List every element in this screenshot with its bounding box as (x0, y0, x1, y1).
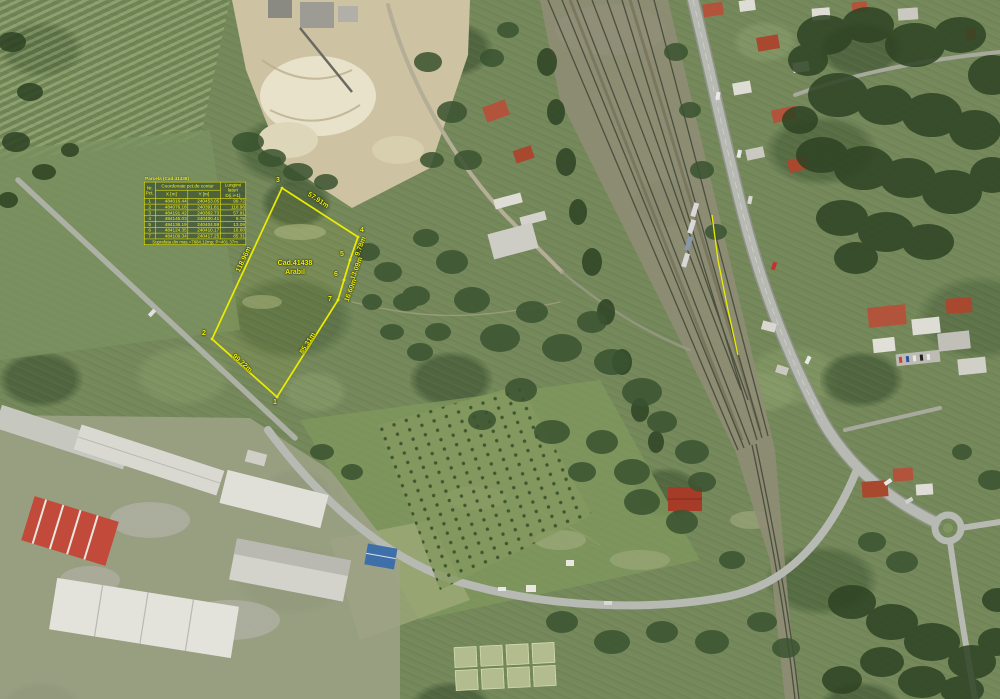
parcel-coordinate-table: Parcela (Cad.41438) Nr. Pct. Coordonate … (144, 176, 246, 245)
vertex-label-1: 1 (273, 399, 277, 406)
vertex-label-2: 2 (202, 330, 206, 337)
col-header-len: Lungimi laturi D(i,i+1) (220, 182, 246, 198)
col-header-x: X [m] (155, 190, 187, 198)
vertex-label-5: 5 (340, 251, 344, 258)
garden-plots (454, 642, 556, 690)
parcel-label: Cad.41438 Arabil (265, 259, 325, 277)
area-perimeter-note: Suprafata din mas.=7684.12mp; P=401.37m (144, 239, 246, 245)
col-header-y: Y [m] (188, 190, 220, 198)
aerial-map: Parcela (Cad.41438) Nr. Pct. Coordonate … (0, 0, 1000, 699)
vertex-label-6: 6 (334, 271, 338, 278)
table-footer-row: Suprafata din mas.=7684.12mp; P=401.37m (144, 239, 246, 245)
vertex-label-3: 3 (276, 177, 280, 184)
quarry-plant (300, 2, 334, 28)
parcel-cad-number: Cad.41438 (265, 259, 325, 268)
basemap-svg (0, 0, 1000, 699)
vertex-label-7: 7 (328, 296, 332, 303)
col-header-nr: Nr. Pct. (144, 182, 155, 198)
parcel-land-use: Arabil (265, 268, 325, 277)
parking-lot (895, 350, 940, 367)
col-header-coord: Coordonate pct.de contur (155, 182, 220, 190)
quarry-area (232, 0, 470, 208)
table-title: Parcela (Cad.41438) (145, 176, 246, 181)
access-road (845, 408, 940, 430)
